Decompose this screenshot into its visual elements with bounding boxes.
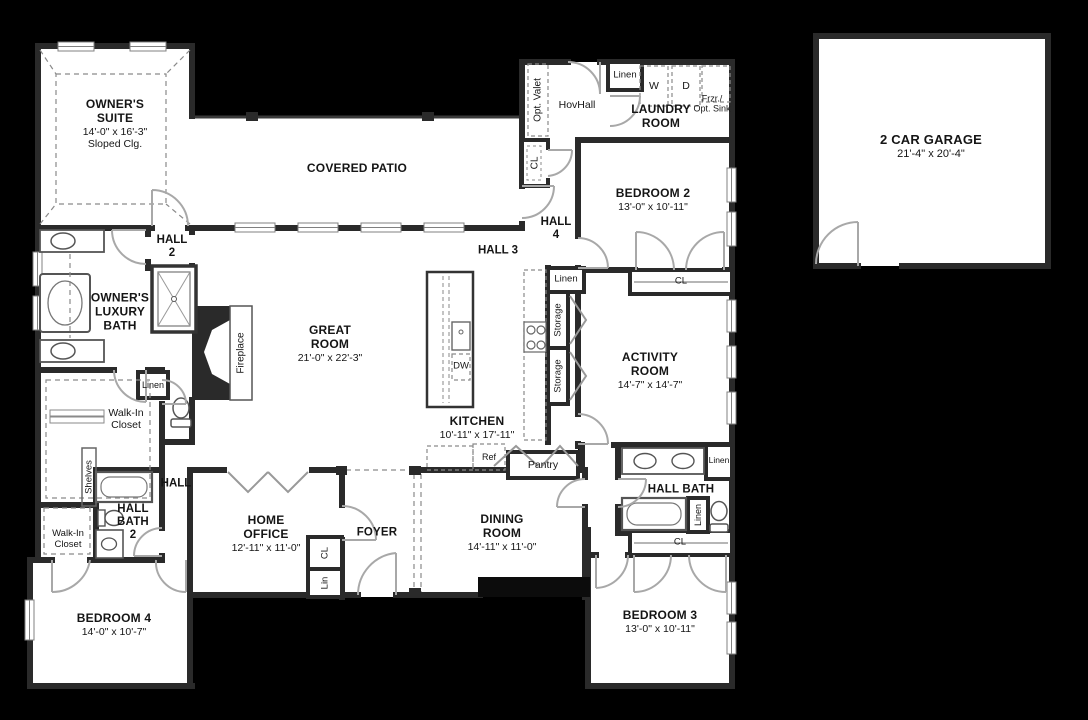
label-opt-valet: Opt. Valet bbox=[533, 78, 544, 122]
room-label-foyer: FOYER bbox=[357, 526, 398, 539]
closet-label-walkin-bed4: Walk-In Closet bbox=[43, 529, 93, 551]
room-label-dining-room: DINING ROOM 14'-11" x 11'-0" bbox=[468, 513, 537, 553]
appliance-label-dw: DW bbox=[453, 362, 469, 373]
floor-plan-page: OWNER'S SUITE 14'-0" x 16'-3" Sloped Clg… bbox=[0, 0, 1088, 720]
closet-label-storage-lower: Storage bbox=[553, 359, 564, 392]
closet-label-linen-owner: Linen bbox=[142, 380, 164, 390]
closet-label-linen-kitchen: Linen bbox=[554, 275, 577, 286]
closet-label-shelves: Shelves bbox=[84, 460, 95, 494]
closet-label-linen-hallbath-entry: Linen bbox=[709, 456, 730, 466]
closet-label-cl-bedroom-2: CL bbox=[675, 277, 687, 288]
closet-label-linen-hallbath: Linen bbox=[693, 504, 703, 526]
closet-label-cl-office: CL bbox=[320, 547, 331, 559]
hall-label-4: HALL 4 bbox=[536, 216, 576, 242]
room-label-owners-suite: OWNER'S SUITE 14'-0" x 16'-3" Sloped Clg… bbox=[76, 98, 154, 150]
room-label-garage: 2 CAR GARAGE 21'-4" x 20'-4" bbox=[880, 133, 982, 161]
closet-label-lin-office: Lin bbox=[320, 577, 331, 590]
room-label-laundry: LAUNDRY ROOM bbox=[626, 103, 696, 131]
closet-label-cl-bedroom-3: CL bbox=[674, 538, 686, 549]
appliance-label-freezer: Frzr./ Opt. Sink bbox=[693, 94, 730, 115]
closet-label-cl-hovhall: CL bbox=[530, 157, 541, 170]
room-label-kitchen: KITCHEN 10'-11" x 17'-11" bbox=[440, 415, 515, 441]
cl-door-opening bbox=[546, 150, 552, 178]
room-label-bedroom-4: BEDROOM 4 14'-0" x 10'-7" bbox=[77, 612, 151, 638]
room-label-bedroom-3: BEDROOM 3 13'-0" x 10'-11" bbox=[623, 609, 697, 635]
room-label-hall-bath-2: HALL BATH 2 bbox=[113, 503, 153, 543]
closet-label-storage-upper: Storage bbox=[553, 303, 564, 336]
room-label-home-office: HOME OFFICE 12'-11" x 11'-0" bbox=[232, 514, 301, 554]
room-label-bedroom-2: BEDROOM 2 13'-0" x 10'-11" bbox=[616, 187, 690, 213]
dining-wall-step bbox=[478, 577, 590, 597]
room-label-owners-bath: OWNER'S LUXURY BATH bbox=[89, 291, 151, 332]
room-label-great-room: GREAT ROOM 21'-0" x 22'-3" bbox=[298, 324, 363, 364]
hall-label: HALL bbox=[161, 477, 192, 490]
room-label-hall-bath: HALL BATH bbox=[648, 483, 715, 496]
room-label-hovhall: HovHall bbox=[559, 99, 596, 111]
floor-plan-drawing bbox=[0, 0, 1088, 720]
room-label-covered-patio: COVERED PATIO bbox=[307, 162, 407, 176]
closet-label-walkin-owner: Walk-In Closet bbox=[99, 407, 153, 431]
appliance-label-ref: Ref bbox=[482, 452, 496, 462]
hall-label-2: HALL 2 bbox=[152, 234, 192, 260]
room-label-activity-room: ACTIVITY ROOM 14'-7" x 14'-7" bbox=[615, 351, 685, 391]
appliance-label-dryer: D bbox=[682, 80, 690, 92]
fixture-label-fireplace: Fireplace bbox=[236, 332, 247, 373]
hall-label-3: HALL 3 bbox=[478, 244, 518, 257]
appliance-label-washer: W bbox=[649, 80, 659, 92]
closet-label-linen-laundry: Linen bbox=[613, 71, 636, 82]
closet-label-pantry: Pantry bbox=[528, 459, 558, 471]
